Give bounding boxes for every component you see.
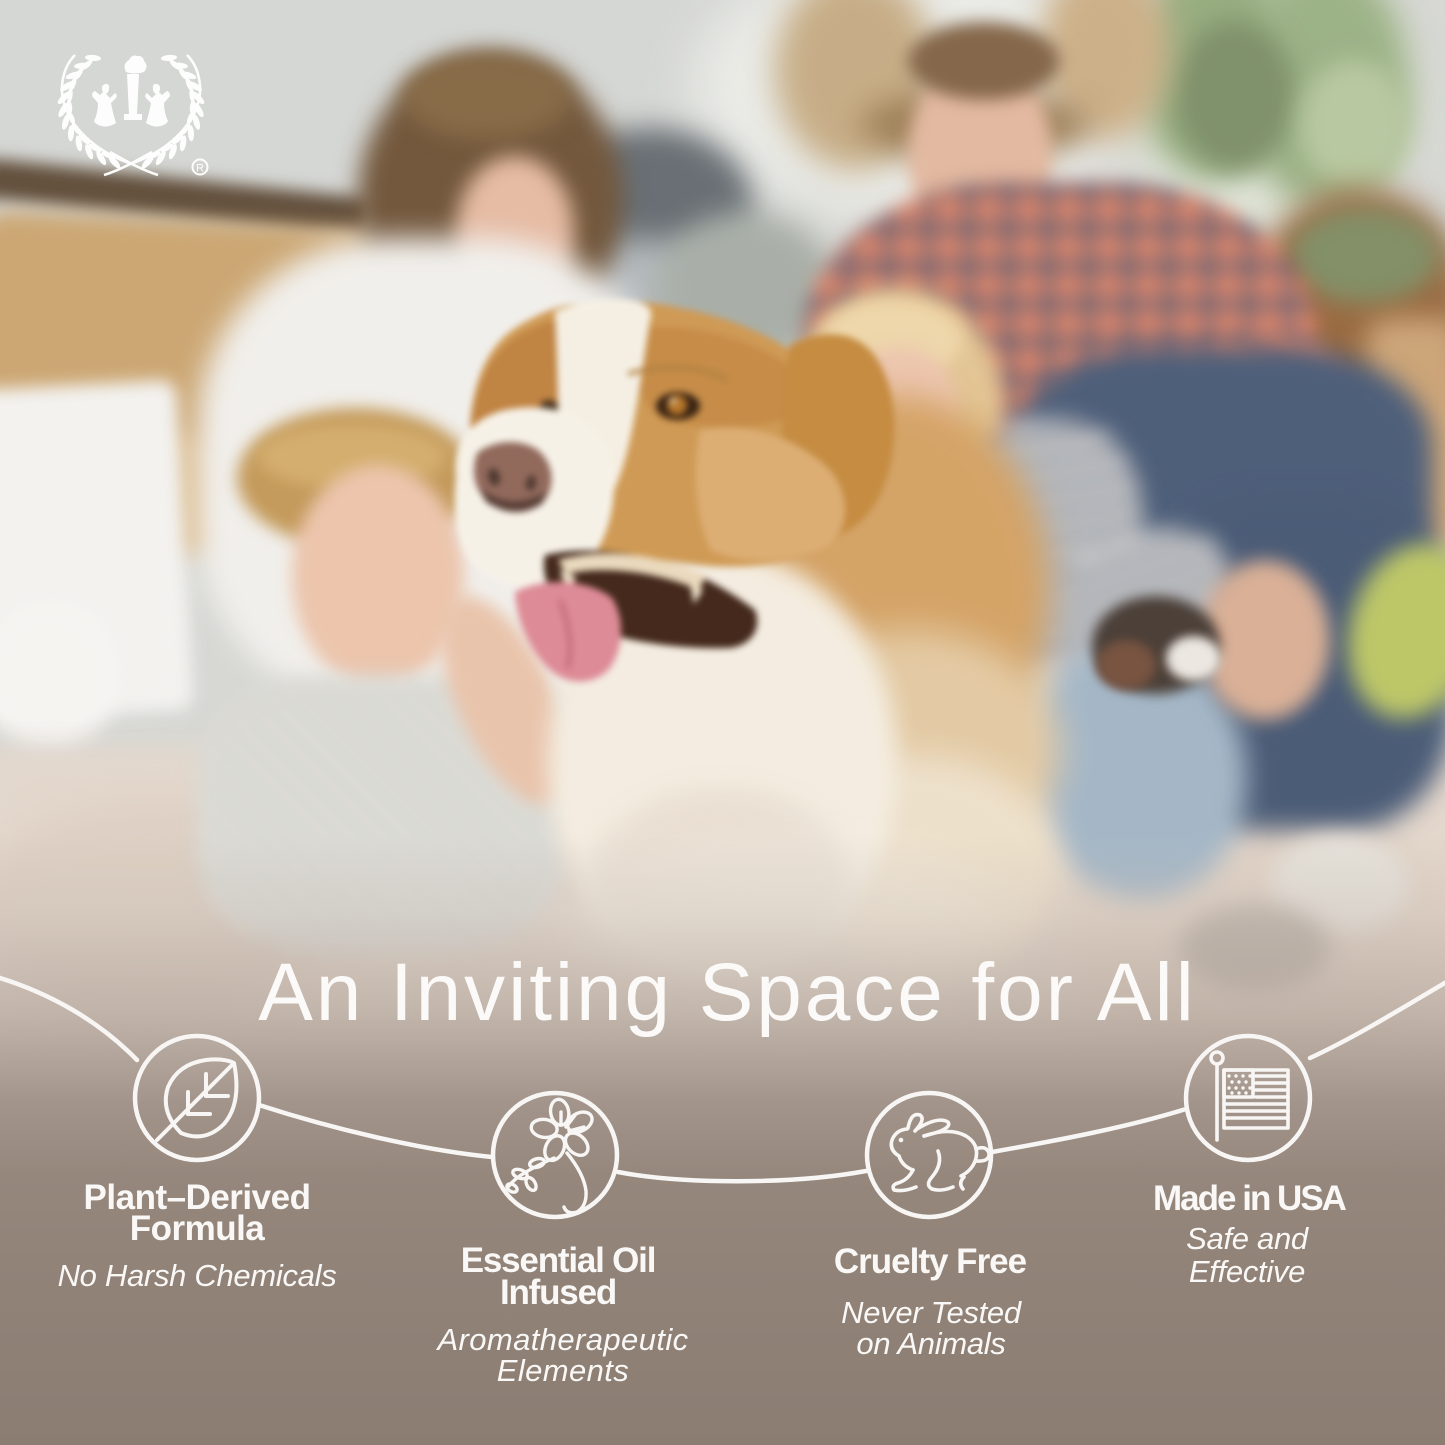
svg-text:R: R: [196, 163, 204, 175]
